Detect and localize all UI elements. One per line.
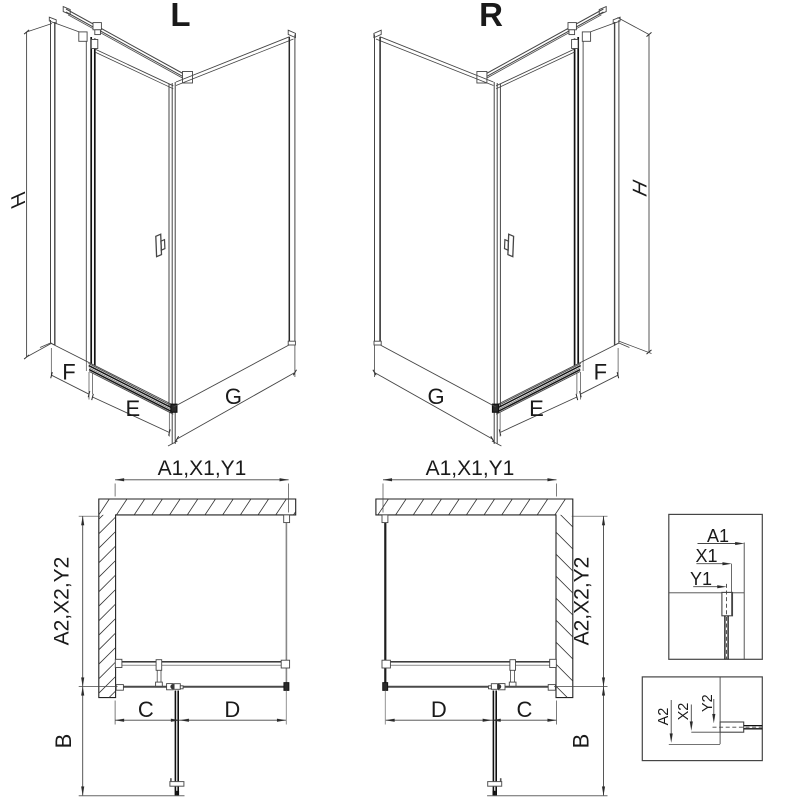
svg-text:F: F: [62, 360, 75, 385]
svg-text:L: L: [170, 0, 190, 33]
svg-text:D: D: [431, 697, 447, 722]
svg-text:A2,X2,Y2: A2,X2,Y2: [51, 557, 74, 646]
svg-text:A2,X2,Y2: A2,X2,Y2: [571, 557, 594, 646]
svg-text:E: E: [529, 396, 544, 421]
svg-text:A1,X1,Y1: A1,X1,Y1: [426, 457, 515, 480]
svg-text:G: G: [225, 384, 242, 409]
svg-text:C: C: [516, 697, 532, 722]
svg-text:Y2: Y2: [700, 694, 716, 712]
svg-text:F: F: [594, 360, 607, 385]
svg-text:Y1: Y1: [690, 569, 712, 589]
svg-text:X1: X1: [695, 546, 717, 566]
svg-text:R: R: [479, 0, 503, 33]
svg-text:G: G: [427, 384, 444, 409]
svg-text:A1,X1,Y1: A1,X1,Y1: [158, 457, 247, 480]
svg-text:C: C: [138, 697, 154, 722]
svg-text:A2: A2: [656, 708, 672, 726]
svg-text:D: D: [224, 697, 240, 722]
svg-text:B: B: [569, 734, 594, 749]
svg-text:E: E: [126, 396, 141, 421]
svg-text:B: B: [51, 734, 76, 749]
svg-text:X2: X2: [676, 703, 692, 721]
svg-text:A1: A1: [707, 526, 729, 546]
